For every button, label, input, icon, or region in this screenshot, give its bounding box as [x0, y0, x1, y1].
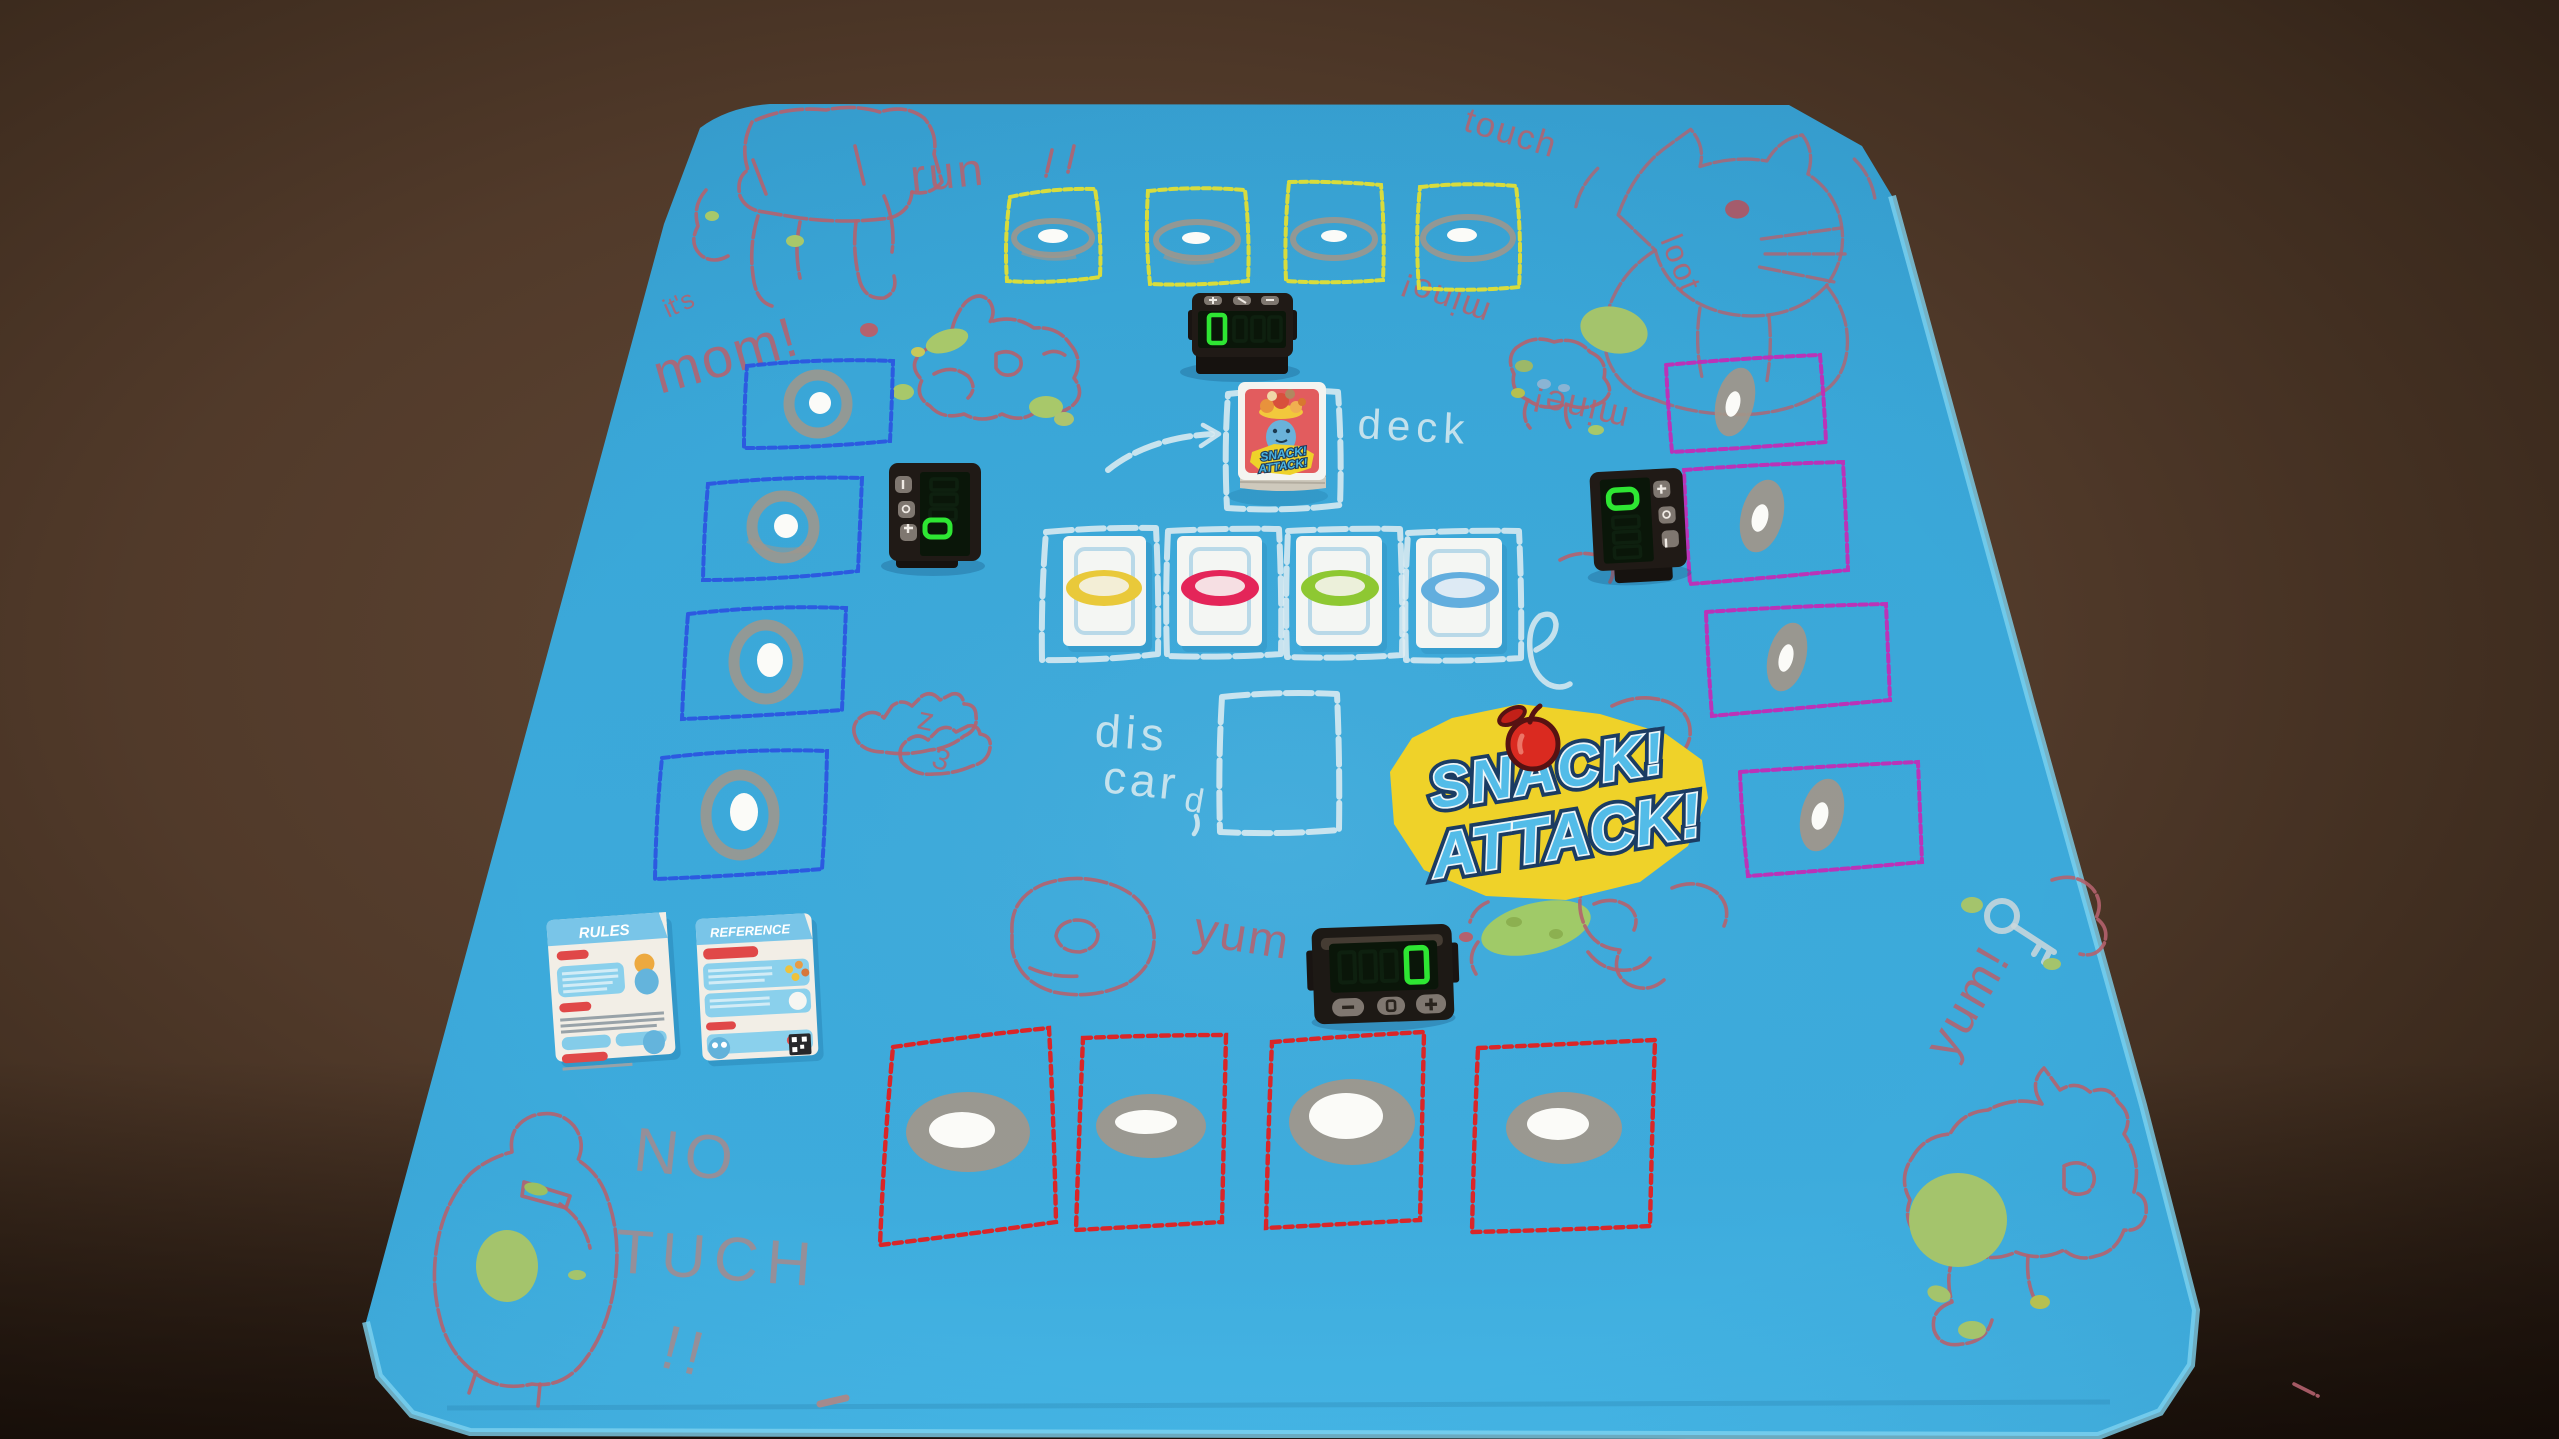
svg-text:RULES: RULES — [578, 922, 630, 943]
svg-text:run: run — [908, 142, 989, 202]
svg-text:NO: NO — [631, 1115, 743, 1195]
svg-text:TUCH: TUCH — [613, 1217, 822, 1300]
svg-text:car: car — [1101, 750, 1182, 810]
svg-text:deck: deck — [1357, 400, 1472, 453]
